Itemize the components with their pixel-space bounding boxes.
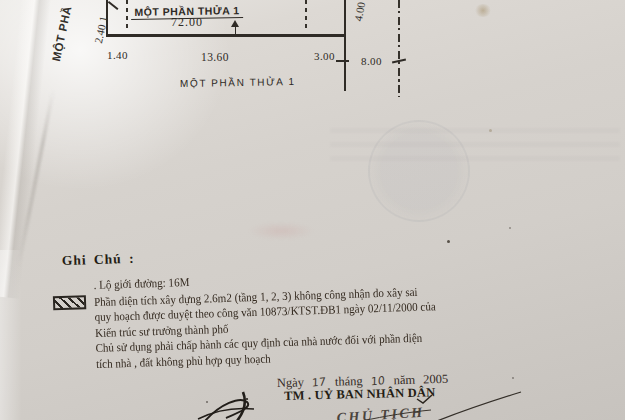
signer-title-partial: CHỦ TỊCH (336, 405, 425, 420)
scanned-cadastral-document: MỘT PHẦN THỬA 1 72.00 MỘT PHẦ 2.40 1 4.0… (0, 0, 625, 420)
signature-block: Ngày17tháng10năm2005 TM . UỶ BAN NHÂN DÂ… (0, 0, 625, 420)
year-value: 2005 (423, 372, 448, 387)
authority-title: TM . UỶ BAN NHÂN DÂN (284, 385, 436, 404)
